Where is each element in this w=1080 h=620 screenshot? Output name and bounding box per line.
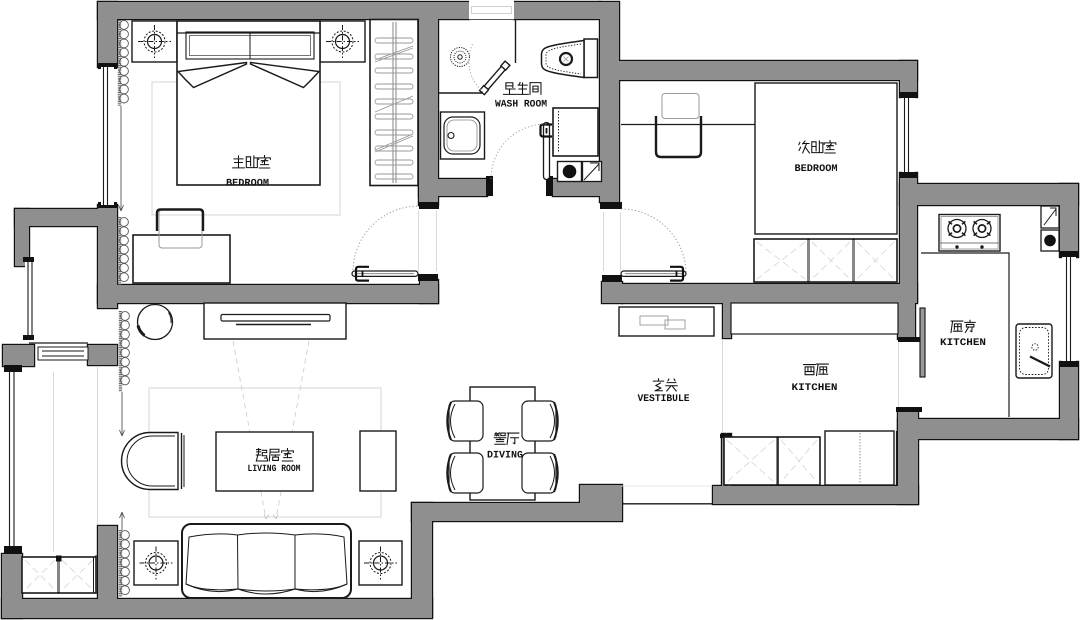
svg-text:KITCHEN: KITCHEN — [940, 338, 986, 349]
svg-text:BEDROOM: BEDROOM — [226, 178, 269, 189]
svg-text:BEDROOM: BEDROOM — [794, 164, 837, 175]
svg-text:KITCHEN: KITCHEN — [791, 383, 837, 394]
svg-text:LIVING ROOM: LIVING ROOM — [247, 463, 300, 474]
svg-text:DIVING: DIVING — [487, 450, 523, 461]
svg-text:WASH ROOM: WASH ROOM — [495, 99, 547, 110]
svg-text:VESTIBULE: VESTIBULE — [637, 394, 689, 405]
